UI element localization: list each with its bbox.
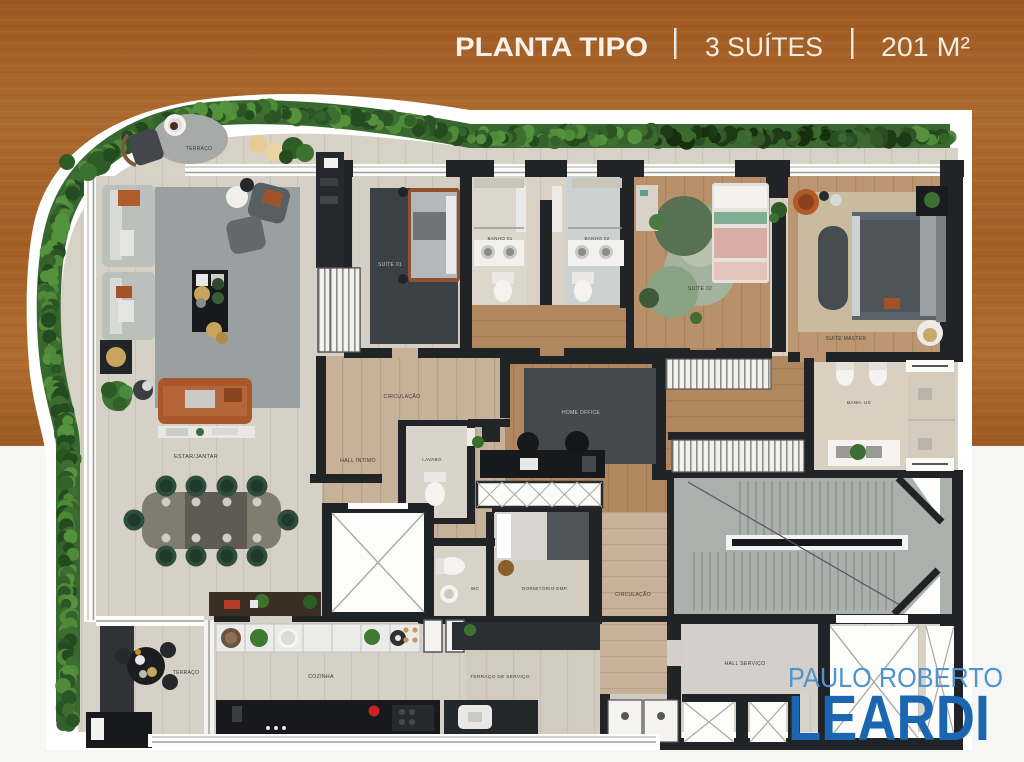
svg-text:ESTAR/JANTAR: ESTAR/JANTAR — [174, 454, 218, 460]
svg-text:SUÍTE MASTER: SUÍTE MASTER — [826, 335, 867, 342]
svg-text:3 SUÍTES: 3 SUÍTES — [705, 32, 823, 62]
svg-text:BANHO 01: BANHO 01 — [487, 236, 512, 241]
svg-text:DORMITÓRIO EMP.: DORMITÓRIO EMP. — [522, 585, 568, 591]
svg-text:BANH. US: BANH. US — [847, 400, 871, 405]
svg-text:TERRAÇO: TERRAÇO — [173, 670, 200, 676]
svg-text:TERRAÇO DE SERVIÇO: TERRAÇO DE SERVIÇO — [470, 674, 530, 680]
svg-text:HALL SERVIÇO: HALL SERVIÇO — [724, 661, 765, 667]
svg-text:SUÍTE 02: SUÍTE 02 — [688, 285, 712, 292]
svg-text:CIRCULAÇÃO: CIRCULAÇÃO — [383, 393, 420, 400]
svg-text:HALL ÍNTIMO: HALL ÍNTIMO — [340, 457, 376, 464]
svg-text:PLANTA TIPO: PLANTA TIPO — [455, 32, 648, 62]
svg-text:LAVABO: LAVABO — [422, 457, 442, 462]
svg-text:LEARDI: LEARDI — [788, 682, 990, 754]
svg-text:COZINHA: COZINHA — [308, 674, 334, 680]
svg-text:HOME OFFICE: HOME OFFICE — [562, 410, 600, 416]
svg-text:201 M²: 201 M² — [881, 32, 970, 62]
svg-text:TERRAÇO: TERRAÇO — [186, 146, 213, 152]
svg-text:BANHO 02: BANHO 02 — [584, 236, 609, 241]
svg-text:CIRCULAÇÃO: CIRCULAÇÃO — [615, 591, 651, 598]
svg-text:SUÍTE 01: SUÍTE 01 — [378, 261, 402, 268]
svg-text:WC: WC — [471, 586, 480, 591]
